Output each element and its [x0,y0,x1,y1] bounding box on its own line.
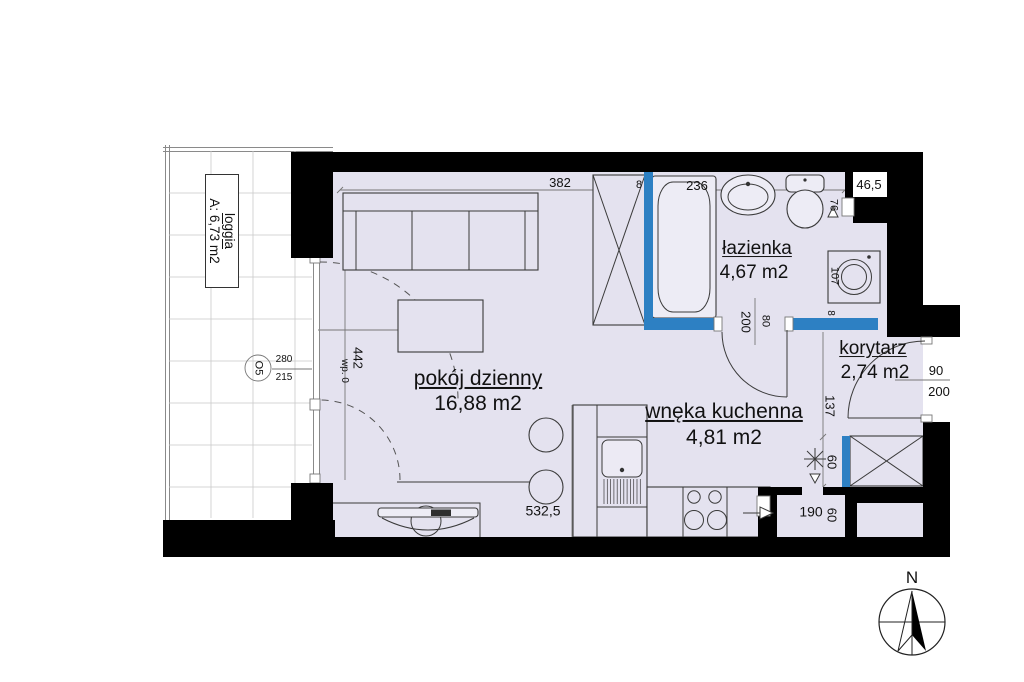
room-label-loggia: loggia [222,177,237,285]
coffee-table [398,300,483,352]
dim-200-entry: 200 [928,385,950,399]
dim-190: 190 [799,505,822,520]
dim-80-bathdoor: 80 [760,315,771,327]
room-area-living: 16,88 m2 [434,393,522,415]
room-label-kitchen: wnęka kuchenna [645,401,803,423]
room-label-bathroom: łazienka [722,239,792,259]
room-area-kitchen: 4,81 m2 [686,427,762,449]
dim-8-wall: 8 [825,310,835,316]
dim-107: 107 [829,267,840,285]
dim-90: 90 [929,364,943,378]
room-label-corridor: korytarz [839,339,907,359]
dim-76: 76 [828,199,839,211]
dim-200-bathdoor: 200 [740,311,753,333]
room-area-corridor: 2,74 m2 [841,363,910,383]
dim-215: 215 [276,373,293,384]
dim-wp0: wp. 0 [339,359,349,383]
bathtub [652,176,716,318]
room-label-loggia-box: loggia A: 6,73 m2 [205,174,239,288]
dim-532-5: 532,5 [525,504,560,519]
dim-236: 236 [686,179,708,193]
room-area-loggia: A: 6,73 m2 [207,177,222,285]
dim-60-corridor: 60 [826,455,839,469]
north-arrow-icon [879,589,945,655]
floor-plan: pokój dzienny 16,88 m2 łazienka 4,67 m2 … [0,0,1024,682]
toilet [786,175,824,228]
bathroom-wardrobe [593,175,645,325]
dim-60-niche: 60 [826,508,839,522]
corridor-wardrobe [850,436,923,486]
stool [529,418,563,452]
north-label: N [906,569,918,587]
stool [529,470,563,504]
dim-8-top: 8 [636,180,642,192]
room-label-living: pokój dzienny [414,368,542,390]
room-area-bathroom: 4,67 m2 [720,263,789,283]
dim-46-5: 46,5 [856,178,881,192]
dim-382: 382 [549,176,571,190]
dim-137: 137 [824,395,837,417]
bathroom-sink [721,175,775,215]
sofa [343,193,538,270]
dim-442: 442 [352,347,365,369]
window-tag-o5: O5 [253,361,264,376]
dim-280: 280 [276,355,293,366]
